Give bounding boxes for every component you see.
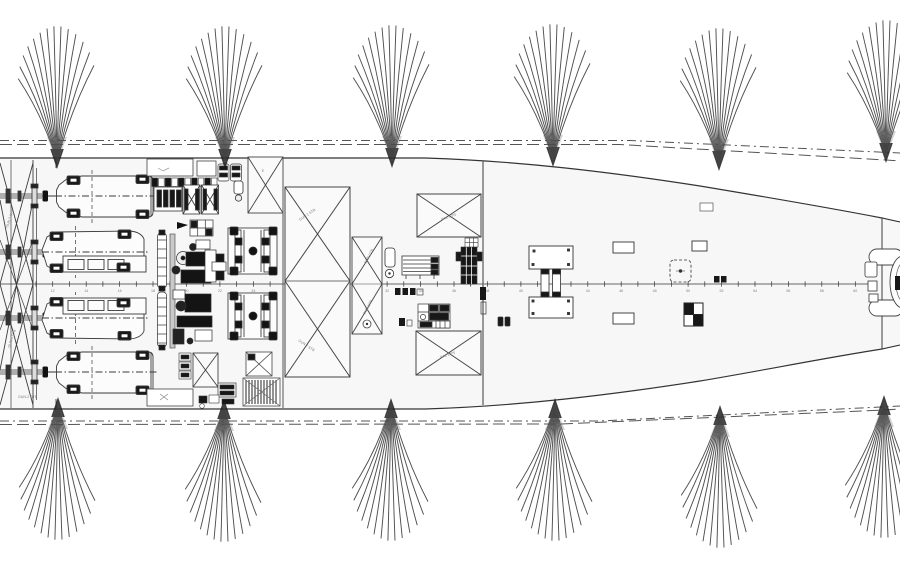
svg-text:34: 34 — [419, 289, 423, 293]
svg-text:56: 56 — [786, 289, 790, 293]
svg-text:44: 44 — [586, 289, 590, 293]
svg-text:50: 50 — [686, 289, 690, 293]
svg-text:12: 12 — [51, 289, 55, 293]
svg-text:54: 54 — [753, 289, 757, 293]
svg-text:58: 58 — [820, 289, 824, 293]
svg-text:32: 32 — [385, 289, 389, 293]
svg-text:16: 16 — [118, 289, 122, 293]
svg-text:22: 22 — [218, 289, 222, 293]
svg-text:52: 52 — [720, 289, 724, 293]
svg-text:48: 48 — [653, 289, 657, 293]
svg-text:14: 14 — [84, 289, 88, 293]
svg-text:24: 24 — [251, 289, 255, 293]
svg-text:40: 40 — [519, 289, 523, 293]
svg-text:GUN-2 STB: GUN-2 STB — [18, 395, 38, 399]
svg-text:18: 18 — [151, 289, 155, 293]
svg-text:46: 46 — [619, 289, 623, 293]
svg-text:36: 36 — [452, 289, 456, 293]
svg-text:60: 60 — [853, 289, 857, 293]
